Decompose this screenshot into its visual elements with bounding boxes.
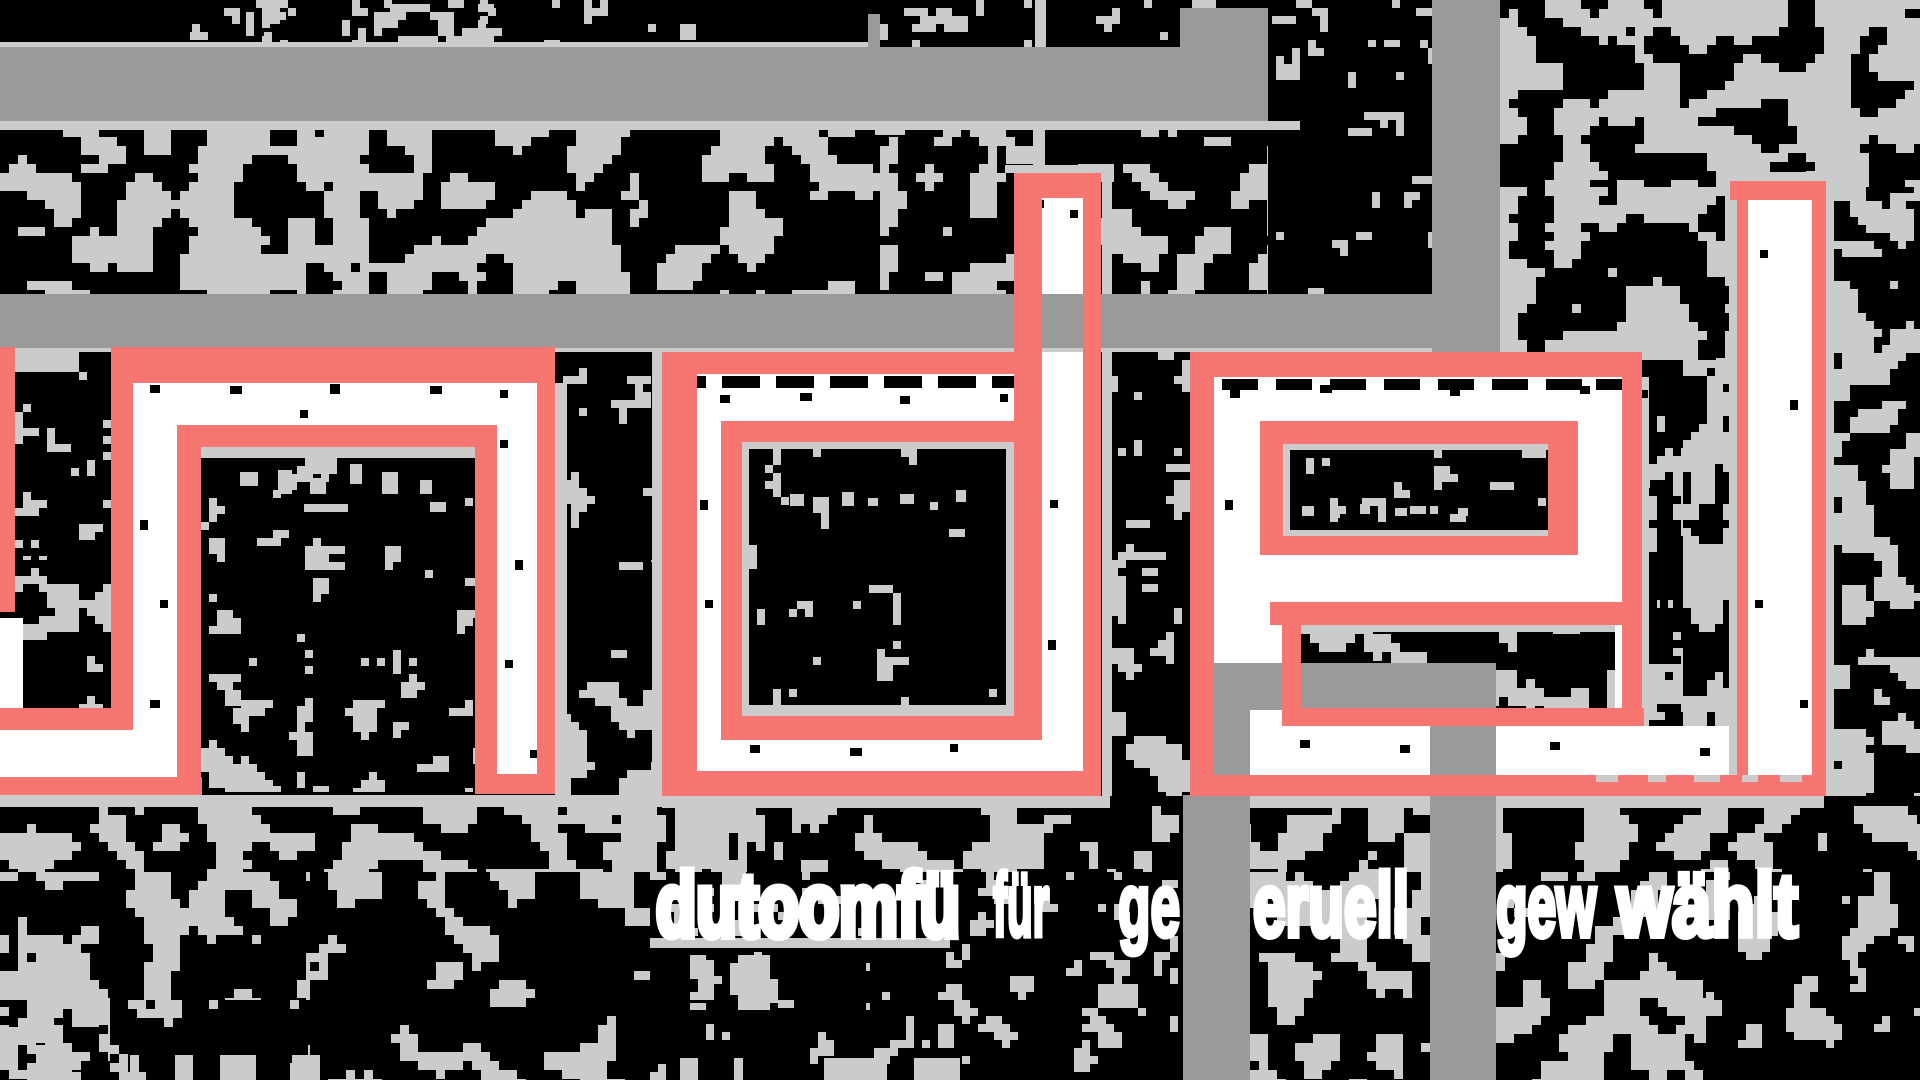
- svg-text:wählt: wählt: [1616, 856, 1798, 956]
- svg-text:eruell: eruell: [1253, 856, 1409, 956]
- svg-text:dutoomfü: dutoomfü: [656, 856, 960, 956]
- svg-text:für: für: [993, 856, 1049, 956]
- svg-text:gew: gew: [1496, 856, 1597, 956]
- svg-text:ge: ge: [1118, 856, 1180, 956]
